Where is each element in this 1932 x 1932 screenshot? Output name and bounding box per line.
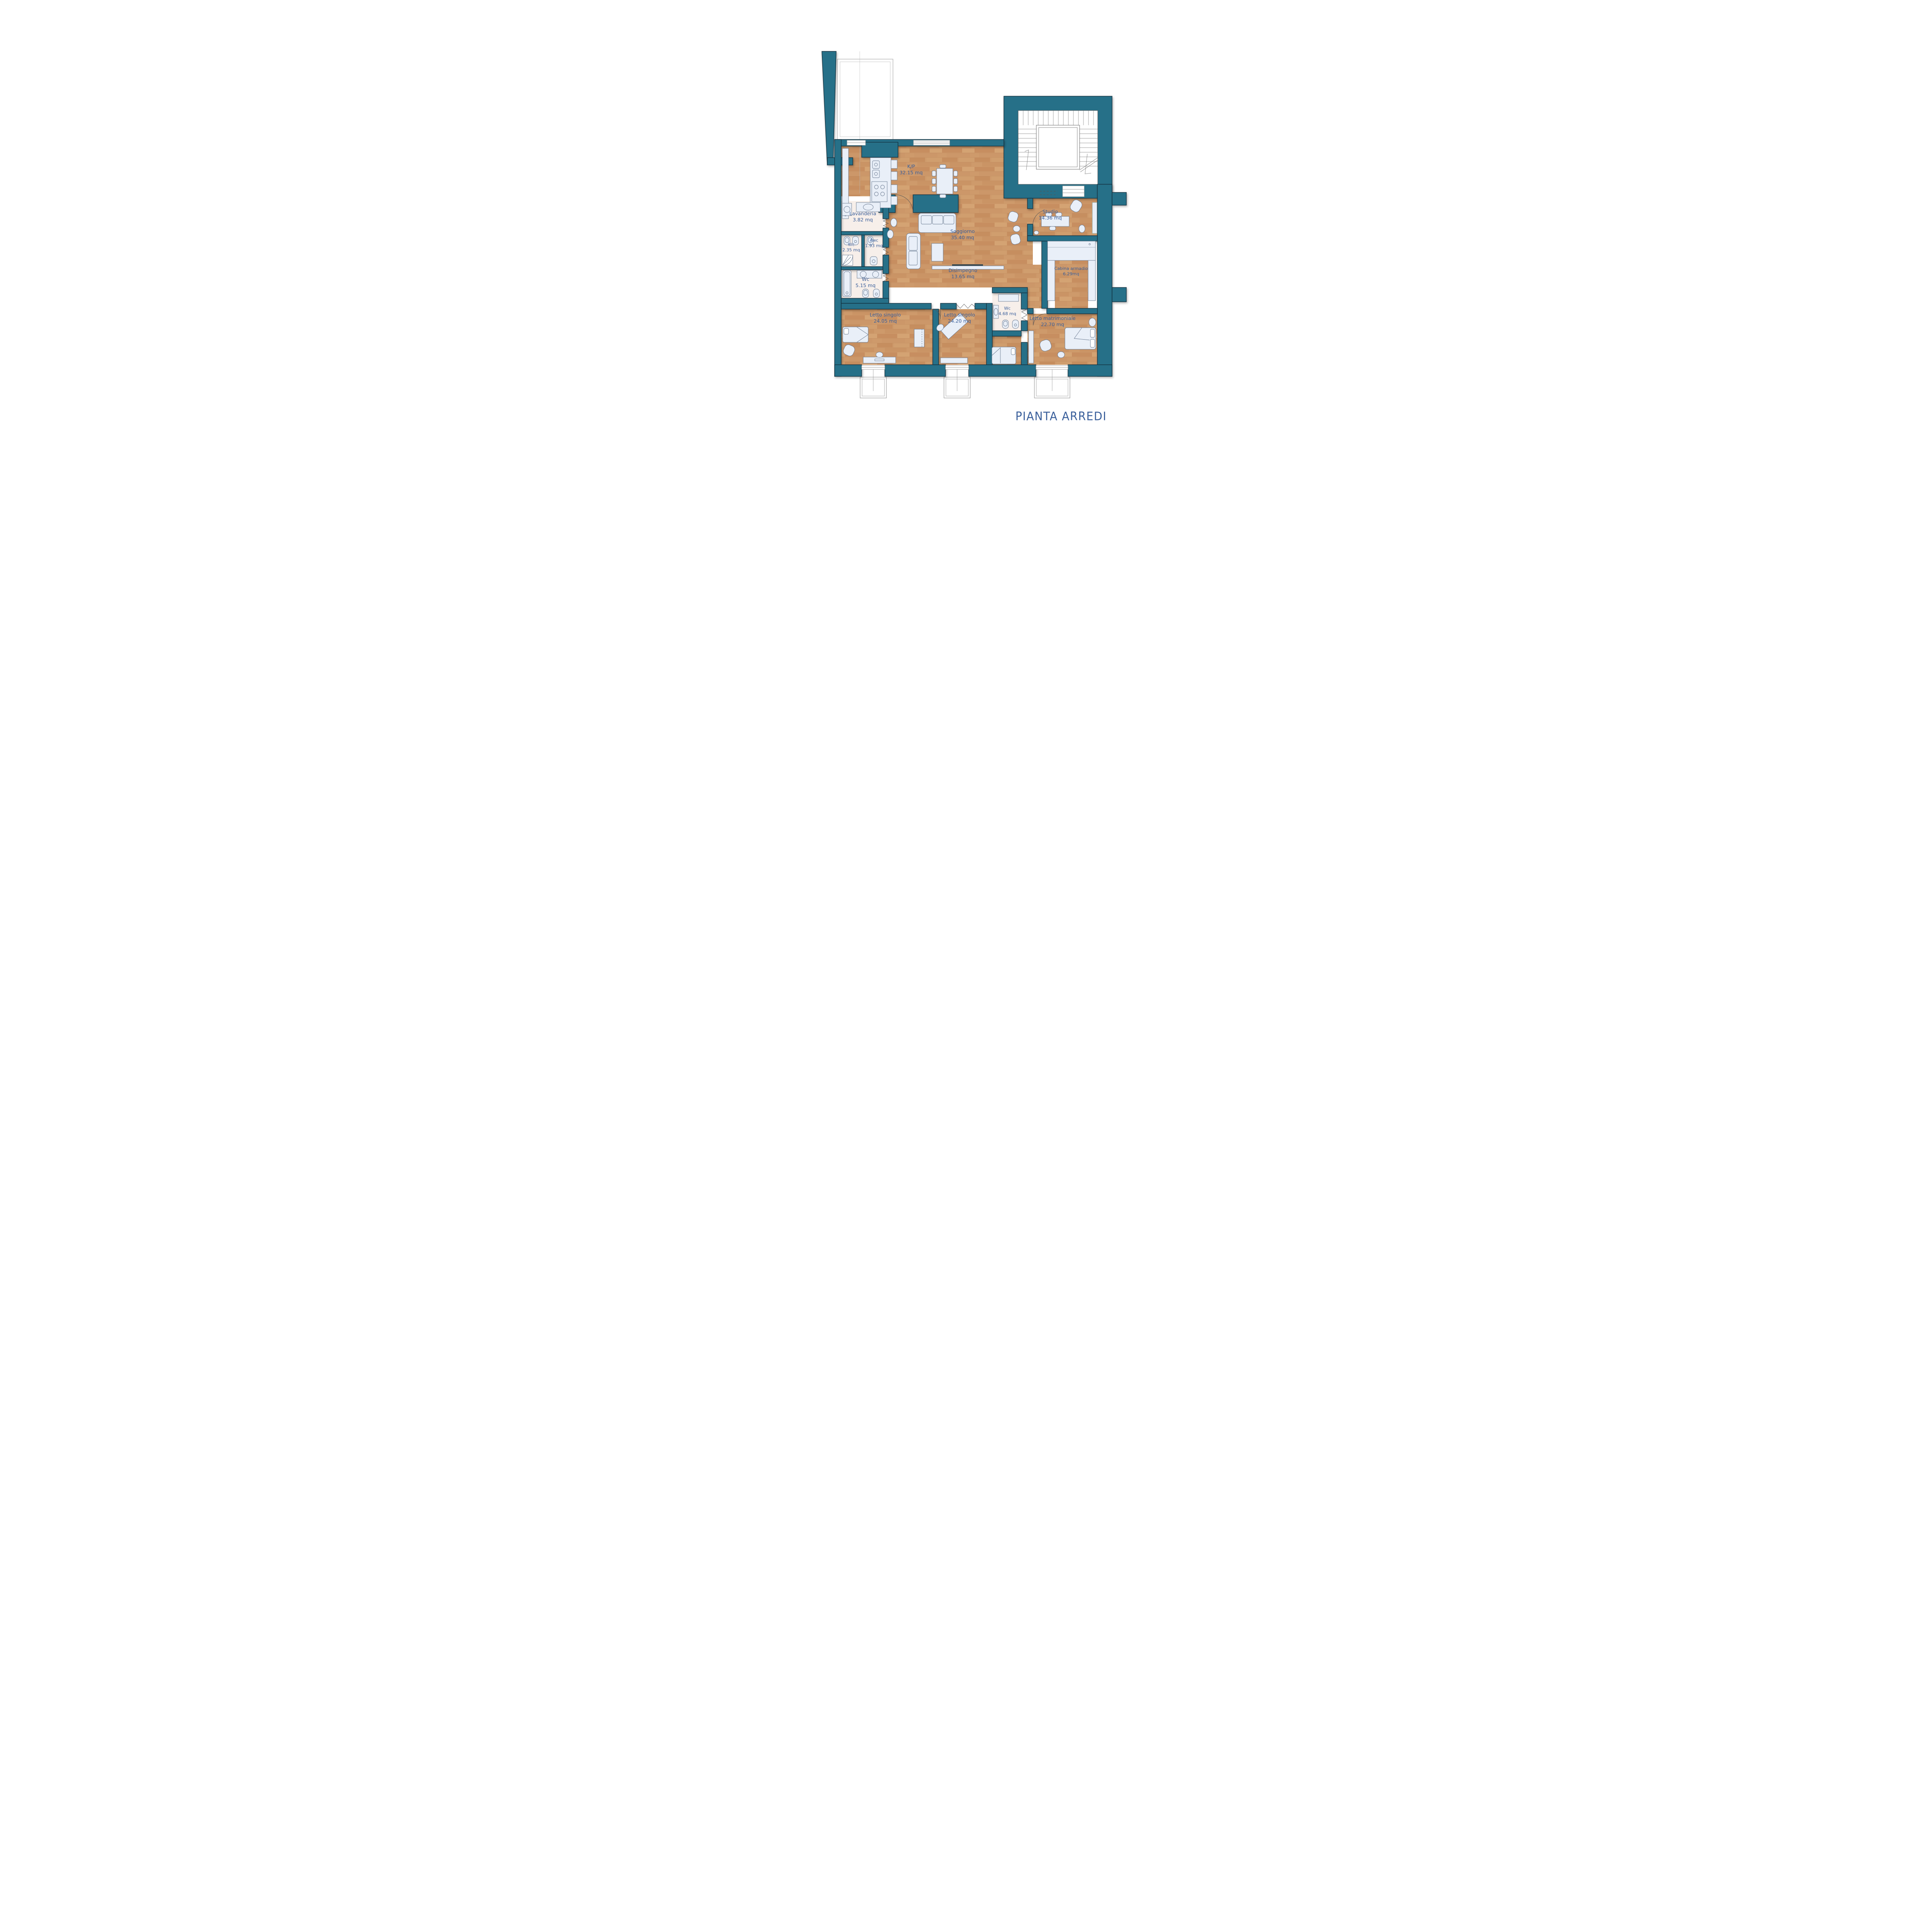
folding-door-wc-camere — [1022, 309, 1027, 321]
terrace-top-left — [837, 59, 893, 139]
wall-niche-right — [1021, 342, 1027, 365]
toilet — [1002, 320, 1009, 328]
single-bed — [843, 327, 868, 342]
wardrobe — [1029, 331, 1034, 363]
wall-letto2-wc — [986, 303, 992, 365]
wall-bedrooms-top — [975, 303, 986, 309]
dresser — [940, 358, 968, 363]
toilet — [867, 236, 873, 245]
wall-matrimoniale-top — [1027, 308, 1033, 314]
wall-bottom — [885, 365, 946, 376]
wall-right-stub-upper — [1112, 192, 1126, 205]
corridor-neck-floor — [1027, 265, 1042, 308]
coffee-table — [932, 243, 943, 261]
wall-pillar-top-left — [822, 51, 836, 165]
wall-wc-awc — [862, 235, 864, 267]
wall-wc468-right — [1021, 293, 1027, 309]
wall-letto1-letto2 — [933, 309, 939, 365]
stair-core — [1036, 125, 1080, 169]
wall-awc-wc515 — [841, 267, 883, 270]
nightstand — [1058, 352, 1065, 358]
single-bed — [992, 347, 1016, 364]
window-sill-studio — [1092, 202, 1097, 233]
wall-right-stub-lower — [1112, 287, 1126, 302]
wall-studio-left — [1027, 224, 1033, 236]
wall-bedrooms-top — [841, 303, 931, 309]
room-cabina-floor — [1055, 260, 1088, 308]
toilet — [862, 289, 869, 298]
wall-bottom — [1068, 365, 1112, 376]
nightstand — [1089, 318, 1096, 327]
wall-studio-bottom — [1027, 236, 1097, 241]
wall-pier-kitchen — [862, 142, 898, 157]
wall-wc468-top — [992, 287, 1027, 293]
bidet — [1012, 320, 1019, 328]
wall-service-column — [883, 255, 889, 274]
bidet — [873, 289, 879, 298]
toilet — [844, 236, 850, 245]
dresser — [914, 329, 924, 347]
sink-column — [993, 305, 998, 318]
sink-small — [870, 257, 877, 265]
wall-matrimoniale-top — [1047, 308, 1097, 314]
bidet — [852, 236, 859, 245]
double-sinks — [857, 270, 882, 278]
wall-right — [1097, 184, 1112, 376]
stairwell — [1004, 96, 1112, 198]
bathtub — [843, 270, 851, 297]
wall-wc515-bottom — [841, 298, 889, 303]
wall-lavanderia-wc — [841, 231, 883, 235]
wall-bottom — [835, 365, 862, 376]
wall-kitchen-soggiorno-b — [913, 195, 958, 213]
folding-door-letto2 — [956, 304, 975, 308]
wall-bedrooms-top — [940, 303, 956, 309]
pouf — [891, 218, 897, 227]
sofa-two-seat — [906, 233, 920, 269]
wall-cabina-left — [1042, 241, 1048, 308]
shower — [842, 255, 853, 265]
double-bed — [1065, 328, 1096, 349]
shower-tray — [998, 294, 1019, 301]
wall-studio-left — [1027, 198, 1033, 209]
sofa-three-seat — [918, 213, 956, 233]
side-table — [1079, 225, 1085, 233]
wall-left — [835, 139, 841, 376]
pouf — [887, 230, 893, 238]
stool — [1034, 231, 1039, 235]
wall-wc468-right — [1021, 321, 1027, 331]
floor-plan-drawing — [747, 0, 1185, 461]
laundry-counter — [856, 202, 880, 212]
wall-bottom — [969, 365, 1036, 376]
wall-wc468-bottom — [992, 331, 1021, 336]
washing-machine — [842, 203, 852, 216]
wall-service-column — [883, 228, 889, 247]
floor-plan-page: K/P 32.15 mq Lavanderia 3.82 mq Wc 2.35 … — [747, 0, 1185, 461]
